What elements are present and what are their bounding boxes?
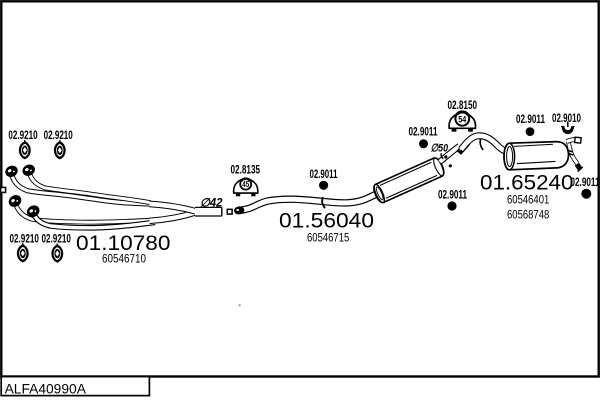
svg-text:01.65240: 01.65240: [480, 171, 574, 194]
svg-text:02.9011: 02.9011: [409, 125, 438, 139]
svg-text:∅50: ∅50: [431, 143, 449, 155]
svg-text:45: 45: [242, 180, 249, 189]
svg-text:02.9011: 02.9011: [438, 187, 467, 201]
svg-text:54: 54: [458, 114, 466, 124]
svg-text:02.9210: 02.9210: [10, 232, 40, 246]
svg-text:02.9011: 02.9011: [571, 175, 600, 189]
svg-text:∅42: ∅42: [200, 196, 223, 209]
svg-text:60568748: 60568748: [507, 209, 549, 222]
svg-text:02.9210: 02.9210: [44, 128, 73, 142]
svg-text:02.8135: 02.8135: [231, 163, 261, 177]
svg-text:02.9210: 02.9210: [42, 232, 72, 246]
svg-text:01.56040: 01.56040: [279, 210, 374, 233]
svg-text:02.9011: 02.9011: [516, 112, 545, 126]
svg-text:60546401: 60546401: [507, 193, 549, 206]
svg-text:02.9011: 02.9011: [310, 167, 338, 181]
svg-text:60546710: 60546710: [102, 252, 146, 265]
svg-text:02.9210: 02.9210: [8, 128, 37, 142]
svg-text:ALFA40990A: ALFA40990A: [5, 381, 87, 396]
svg-text:02.8150: 02.8150: [448, 98, 478, 112]
svg-text:02.9010: 02.9010: [552, 111, 581, 125]
svg-text:60546715: 60546715: [307, 231, 349, 244]
